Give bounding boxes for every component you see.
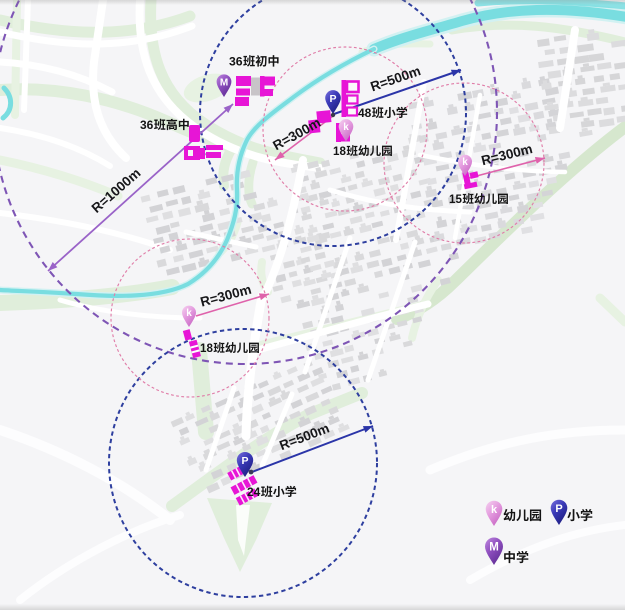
svg-text:15: 15 [449,193,462,206]
svg-text:18: 18 [333,145,346,158]
svg-text:18: 18 [200,342,213,355]
svg-text:24: 24 [247,485,261,499]
svg-text:P: P [241,455,248,467]
svg-text:36: 36 [229,55,243,69]
svg-text:M: M [489,542,499,554]
svg-text:k: k [462,157,468,168]
svg-text:k: k [186,308,192,319]
svg-text:k: k [343,122,349,133]
svg-text:36: 36 [140,118,154,132]
svg-text:48: 48 [358,106,372,120]
svg-text:P: P [329,93,336,105]
svg-text:k: k [491,504,498,516]
svg-text:P: P [555,503,562,515]
svg-text:M: M [220,77,228,88]
